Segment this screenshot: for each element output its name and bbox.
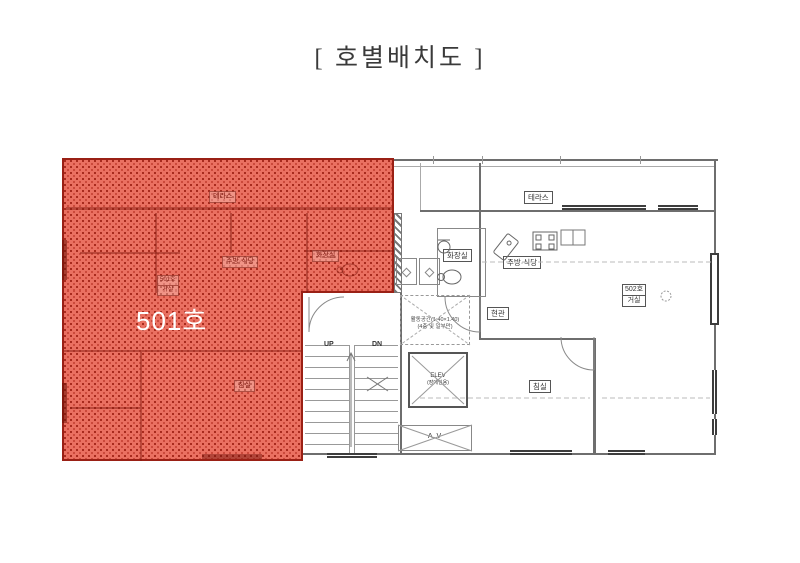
unit-502-living-label: 502호 거실 — [622, 284, 646, 307]
unit-501-terrace-wall — [66, 207, 392, 210]
unit-501-bathroom-label: 화장실 — [312, 250, 339, 262]
terrace-side-line — [420, 163, 421, 211]
unit-501-inner-wall — [70, 407, 140, 409]
cabinet-icon — [561, 230, 585, 245]
unit-502-kitchen-label: 주방·식당 — [503, 256, 541, 269]
unit-501-highlight-upper — [62, 158, 394, 293]
elevator-label: ELEV (장애인용) — [408, 352, 468, 408]
unit-501-terrace-label: 테라스 — [209, 191, 236, 203]
shaft-mark — [425, 268, 435, 278]
unit-501-inner-wall — [140, 352, 142, 461]
unit-501-living-label: 501호 거실 — [157, 275, 179, 296]
unit-501-outline — [392, 158, 394, 293]
terrace-inner-wall — [420, 210, 716, 212]
terrace-window — [562, 205, 646, 210]
bathroom-502-walls — [437, 228, 486, 297]
floor-plan: UP DN ELEV (장애인용) A.V 활동공간(1.40×1.40) (4… — [62, 155, 728, 467]
bedroom-top-wall — [480, 338, 596, 340]
unit-501-inner-wall — [64, 350, 301, 352]
unit-501-living-label-line2: 거실 — [158, 286, 178, 295]
outer-wall-top-inner-line — [394, 166, 716, 167]
dimension-tick — [482, 156, 483, 164]
outer-wall-top — [394, 159, 718, 161]
unit-501-left-window — [62, 383, 67, 423]
unit-501-bottom-window — [202, 454, 262, 459]
terrace-window — [658, 205, 698, 210]
unit-501-outline — [62, 459, 303, 461]
bedroom-bottom-window — [510, 450, 572, 455]
bedroom-side-wall — [593, 340, 596, 453]
dimension-tick — [433, 156, 434, 164]
dimension-tick — [560, 156, 561, 164]
unit-501-number: 501호 — [136, 301, 207, 338]
right-wall-window — [712, 370, 717, 414]
unit-502-entrance-label: 현관 — [487, 307, 509, 320]
dining-table-icon — [533, 232, 557, 250]
unit-501-inner-wall — [306, 213, 308, 293]
shaft-mark — [402, 268, 412, 278]
unit-502-bathroom-label: 화장실 — [443, 249, 472, 262]
unit-501-outline — [303, 291, 394, 293]
door-arc-bedroom — [561, 337, 594, 370]
unit-502-bedroom-label: 침실 — [529, 380, 551, 393]
stairs-down-label: DN — [372, 341, 382, 348]
unit-501-outline — [62, 158, 394, 160]
unit-501-kitchen-label: 주방·식당 — [222, 256, 258, 268]
unit-501-left-window — [62, 240, 67, 280]
living-doodle-circle — [661, 291, 671, 301]
activity-space-note: 활동공간(1.40×1.40) (4층 및 일부만) — [398, 317, 472, 330]
stair-center-rail — [349, 345, 355, 453]
elevator-label-line1: ELEV — [429, 373, 446, 380]
elevator-label-line2: (장애인용) — [426, 380, 450, 387]
air-vent-label: A.V — [398, 433, 472, 440]
duct-shaft — [419, 258, 440, 285]
unit-501-bedroom-label: 침실 — [234, 380, 255, 392]
stairwell-window — [327, 453, 377, 458]
unit-501-inner-wall — [80, 252, 180, 254]
unit-501-living-label-line1: 501호 — [158, 276, 178, 286]
note-line2: (4층 및 일부만) — [398, 324, 472, 331]
right-wall-window-box — [710, 253, 719, 325]
dimension-tick — [640, 156, 641, 164]
unit-501-inner-wall — [230, 213, 232, 253]
door-arc-unit501 — [309, 297, 344, 332]
page-title: [ 호별배치도 ] — [0, 38, 800, 74]
unit-502-living-label-line1: 502호 — [623, 285, 645, 296]
living-bottom-window — [608, 450, 645, 455]
duct-shaft — [396, 258, 417, 285]
stairs-up-label: UP — [324, 341, 334, 348]
unit-501-outline — [301, 291, 303, 461]
unit-502-terrace-label: 테라스 — [524, 191, 553, 204]
right-wall-window — [712, 419, 717, 435]
unit-502-living-label-line2: 거실 — [623, 296, 645, 306]
